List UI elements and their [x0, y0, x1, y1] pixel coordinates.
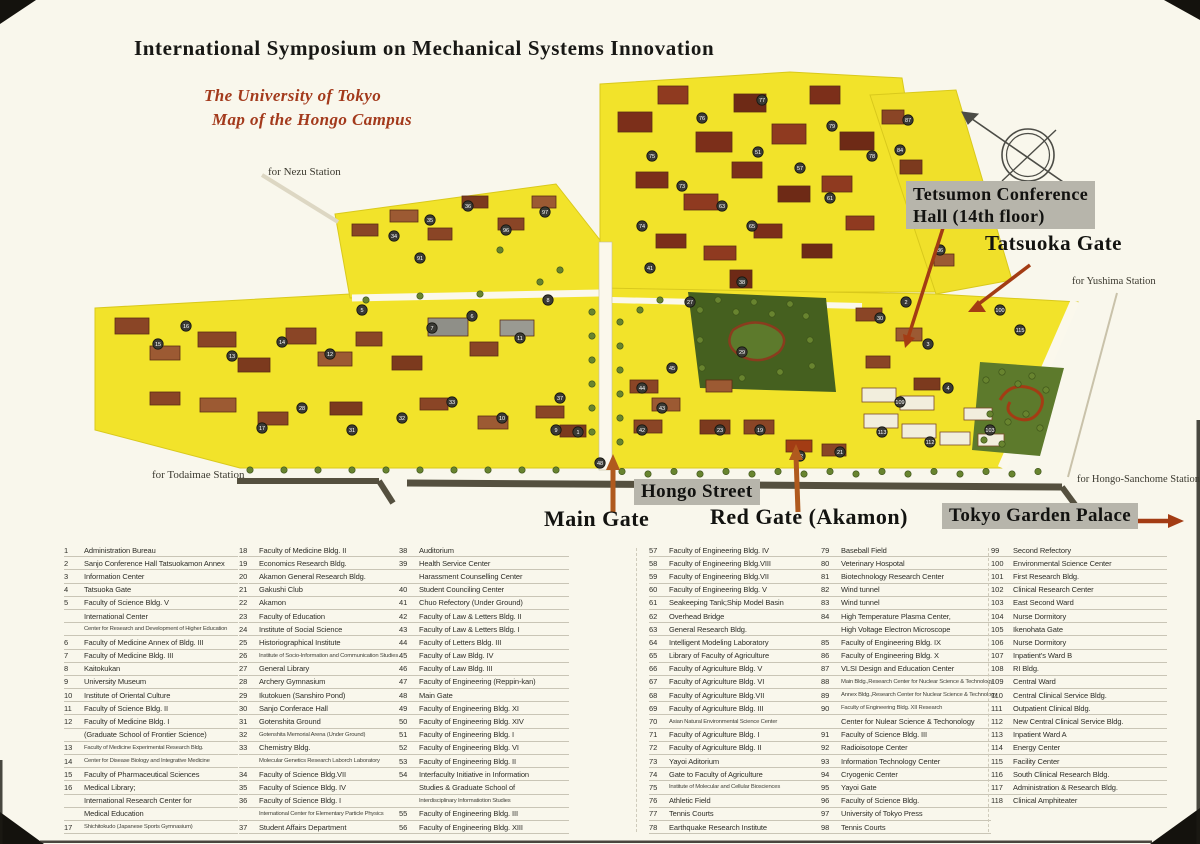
tree-icon: [383, 467, 389, 473]
tree-icon: [671, 468, 677, 474]
map-marker-number: 12: [327, 352, 333, 358]
map-marker-number: 57: [797, 166, 803, 172]
garden-ikutokuen: [688, 292, 836, 392]
map-marker-number: 19: [757, 428, 763, 434]
map-marker-number: 77: [759, 98, 765, 104]
map-marker-number: 8: [546, 298, 549, 304]
tree-icon: [905, 471, 911, 477]
tree-icon: [1043, 387, 1049, 393]
tree-icon: [619, 468, 625, 474]
map-marker-number: 2: [904, 300, 907, 306]
map-marker-number: 115: [1016, 328, 1025, 334]
map-marker-number: 65: [749, 224, 755, 230]
map-marker-number: 21: [837, 450, 843, 456]
map-marker-number: 44: [639, 386, 645, 392]
tree-icon: [617, 343, 623, 349]
tree-icon: [879, 468, 885, 474]
map-marker-number: 109: [895, 400, 904, 406]
label-tetsumon-conference-hall: Tetsumon Conference Hall (14th floor): [906, 181, 1095, 229]
map-marker-number: 61: [827, 196, 833, 202]
map-marker-number: 9: [554, 428, 557, 434]
map-marker-number: 35: [427, 218, 433, 224]
map-marker-number: 29: [739, 350, 745, 356]
tree-icon: [617, 367, 623, 373]
tree-icon: [637, 307, 643, 313]
map-marker-number: 97: [542, 210, 548, 216]
tree-icon: [697, 471, 703, 477]
legend-separator: [636, 548, 637, 832]
tree-icon: [417, 293, 423, 299]
campus-map: 3635349196971615131412761185109172831323…: [0, 0, 1200, 844]
tree-icon: [803, 313, 809, 319]
tree-icon: [349, 467, 355, 473]
tree-icon: [801, 471, 807, 477]
tree-icon: [769, 311, 775, 317]
map-subtitle-campus: Map of the Hongo Campus: [212, 110, 412, 130]
tree-icon: [733, 309, 739, 315]
map-marker-number: 6: [470, 314, 473, 320]
tree-icon: [497, 247, 503, 253]
map-marker-number: 27: [687, 300, 693, 306]
map-marker-number: 100: [995, 308, 1004, 314]
map-marker-number: 79: [829, 124, 835, 130]
tree-icon: [1037, 425, 1043, 431]
map-marker-number: 41: [647, 266, 653, 272]
tree-icon: [553, 467, 559, 473]
label-tatsuoka-gate: Tatsuoka Gate: [985, 231, 1122, 256]
tree-icon: [519, 467, 525, 473]
map-marker-number: 23: [717, 428, 723, 434]
tree-icon: [617, 415, 623, 421]
tree-icon: [617, 391, 623, 397]
map-marker-number: 4: [946, 386, 949, 392]
tree-icon: [957, 471, 963, 477]
tree-icon: [699, 365, 705, 371]
tree-icon: [987, 411, 993, 417]
tree-icon: [589, 333, 595, 339]
tree-icon: [931, 468, 937, 474]
map-marker-number: 96: [503, 228, 509, 234]
map-marker-number: 74: [639, 224, 645, 230]
map-marker-number: 87: [905, 118, 911, 124]
tree-icon: [1005, 419, 1011, 425]
tree-icon: [589, 381, 595, 387]
tree-icon: [999, 369, 1005, 375]
label-red-gate: Red Gate (Akamon): [710, 504, 908, 530]
map-subtitle-university: The University of Tokyo: [204, 86, 381, 106]
tree-icon: [657, 297, 663, 303]
map-marker-number: 15: [155, 342, 161, 348]
label-hongo-street: Hongo Street: [634, 479, 760, 505]
map-marker-number: 43: [659, 406, 665, 412]
tree-icon: [751, 299, 757, 305]
map-marker-number: 10: [499, 416, 505, 422]
tree-icon: [589, 357, 595, 363]
tree-icon: [983, 468, 989, 474]
tree-icon: [477, 291, 483, 297]
map-marker-number: 37: [557, 396, 563, 402]
map-marker-number: 91: [417, 256, 423, 262]
label-main-gate: Main Gate: [544, 506, 649, 532]
tree-icon: [775, 468, 781, 474]
map-marker-number: 36: [465, 204, 471, 210]
map-marker-number: 103: [985, 428, 994, 434]
tree-icon: [557, 267, 563, 273]
tree-icon: [617, 319, 623, 325]
map-marker-number: 112: [926, 440, 935, 446]
tree-icon: [807, 337, 813, 343]
map-marker-number: 38: [739, 280, 745, 286]
legend-separator: [988, 548, 989, 832]
map-marker-number: 32: [399, 416, 405, 422]
map-marker-number: 78: [869, 154, 875, 160]
tree-icon: [999, 441, 1005, 447]
label-todaimae-station: for Todaimae Station: [152, 469, 245, 481]
tree-icon: [749, 471, 755, 477]
tree-icon: [777, 369, 783, 375]
tree-icon: [787, 301, 793, 307]
tree-icon: [363, 297, 369, 303]
map-marker-number: 3: [926, 342, 929, 348]
tree-icon: [809, 363, 815, 369]
tree-icon: [1029, 373, 1035, 379]
map-marker-number: 28: [299, 406, 305, 412]
map-marker-number: 75: [649, 154, 655, 160]
tree-icon: [981, 437, 987, 443]
tree-icon: [617, 439, 623, 445]
map-marker-number: 7: [430, 326, 433, 332]
tree-icon: [281, 467, 287, 473]
tree-icon: [315, 467, 321, 473]
tree-icon: [537, 279, 543, 285]
tree-icon: [1015, 381, 1021, 387]
tree-icon: [1009, 471, 1015, 477]
tree-icon: [1023, 411, 1029, 417]
map-marker-number: 48: [597, 461, 603, 467]
map-marker-number: 31: [349, 428, 355, 434]
tree-icon: [853, 471, 859, 477]
tree-icon: [589, 429, 595, 435]
tree-icon: [645, 471, 651, 477]
map-marker-number: 33: [449, 400, 455, 406]
map-marker-number: 14: [279, 340, 285, 346]
label-tokyo-garden-palace: Tokyo Garden Palace: [942, 503, 1138, 529]
map-marker-number: 42: [639, 428, 645, 434]
tree-icon: [697, 337, 703, 343]
page-title: International Symposium on Mechanical Sy…: [134, 36, 714, 61]
map-marker-number: 63: [719, 204, 725, 210]
tree-icon: [589, 309, 595, 315]
tree-icon: [739, 375, 745, 381]
map-marker-number: 84: [897, 148, 903, 154]
map-marker-number: 5: [360, 308, 363, 314]
tree-icon: [715, 297, 721, 303]
map-marker-number: 73: [679, 184, 685, 190]
tree-icon: [1035, 468, 1041, 474]
map-marker-number: 1: [576, 430, 579, 436]
map-marker-number: 13: [229, 354, 235, 360]
map-marker-number: 11: [517, 336, 523, 342]
map-marker-number: 113: [878, 430, 887, 436]
map-marker-number: 45: [669, 366, 675, 372]
map-marker-number: 17: [259, 426, 265, 432]
tree-icon: [827, 468, 833, 474]
map-marker-number: 34: [391, 234, 397, 240]
map-marker-number: 51: [755, 150, 761, 156]
tree-icon: [723, 468, 729, 474]
tree-icon: [417, 467, 423, 473]
tree-icon: [589, 405, 595, 411]
tree-icon: [451, 467, 457, 473]
tree-icon: [697, 307, 703, 313]
label-yushima-station: for Yushima Station: [1072, 276, 1156, 287]
tree-icon: [485, 467, 491, 473]
tetsumon-line2: Hall (14th floor): [913, 205, 1088, 227]
tetsumon-line1: Tetsumon Conference: [913, 183, 1088, 205]
map-marker-number: 76: [699, 116, 705, 122]
map-marker-number: 16: [183, 324, 189, 330]
label-nezu-station: for Nezu Station: [268, 166, 341, 178]
map-marker-number: 30: [877, 316, 883, 322]
tree-icon: [983, 377, 989, 383]
tree-icon: [247, 467, 253, 473]
label-hongo-sanchome-station: for Hongo-Sanchome Station: [1077, 474, 1200, 485]
